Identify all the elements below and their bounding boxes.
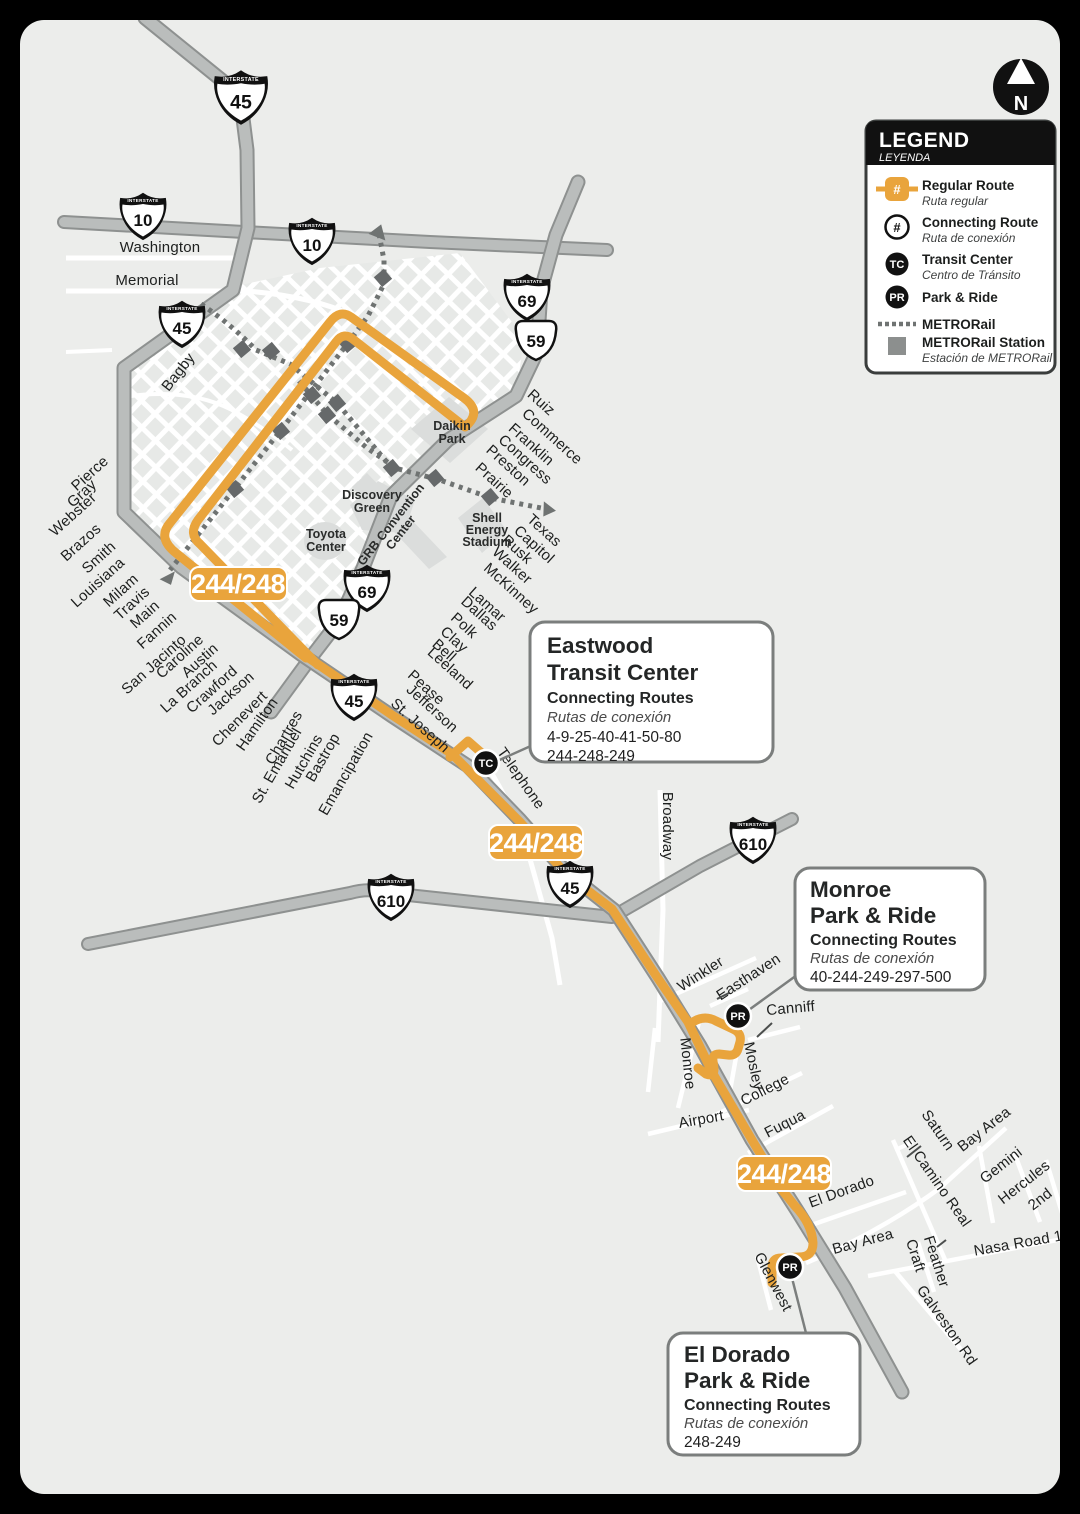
svg-text:METRORail: METRORail	[922, 317, 996, 332]
svg-text:TC: TC	[479, 758, 494, 770]
callout-title: Park & Ride	[810, 903, 936, 928]
svg-text:Park & Ride: Park & Ride	[922, 290, 998, 305]
callout-monroe: Monroe Park & Ride Connecting Routes Rut…	[795, 868, 985, 990]
callout-heading: Connecting Routes	[684, 1397, 831, 1414]
svg-text:INTERSTATE: INTERSTATE	[166, 306, 197, 311]
svg-text:244/248: 244/248	[737, 1159, 832, 1189]
callout-title: El Dorado	[684, 1342, 790, 1367]
callout-eastwood: Eastwood Transit Center Connecting Route…	[530, 622, 773, 765]
svg-text:Regular Route: Regular Route	[922, 178, 1015, 193]
hash-icon: #	[893, 182, 901, 197]
route-badge-south: 244/248	[737, 1156, 832, 1191]
svg-text:Ruta de conexión: Ruta de conexión	[922, 231, 1016, 245]
svg-text:Centro de Tránsito: Centro de Tránsito	[922, 268, 1021, 282]
svg-text:610: 610	[739, 835, 767, 854]
svg-text:Ruta regular: Ruta regular	[922, 194, 989, 208]
callout-heading: Connecting Routes	[547, 690, 694, 707]
pr-icon: PR	[889, 292, 904, 304]
svg-text:Connecting Route: Connecting Route	[922, 215, 1039, 230]
legend-subtitle: LEYENDA	[879, 152, 930, 164]
landmark-label: Park	[438, 432, 465, 446]
svg-text:Estación de METRORail: Estación de METRORail	[922, 351, 1052, 365]
svg-text:610: 610	[377, 892, 405, 911]
svg-text:59: 59	[330, 611, 349, 630]
svg-text:10: 10	[303, 236, 322, 255]
svg-text:INTERSTATE: INTERSTATE	[737, 822, 768, 827]
legend-title: LEGEND	[879, 129, 970, 152]
callout-routes: 248-249	[684, 1434, 741, 1451]
callout-title: Park & Ride	[684, 1368, 810, 1393]
landmark-label: Center	[306, 540, 346, 554]
street-label: Memorial	[115, 272, 178, 289]
svg-text:METRORail Station: METRORail Station	[922, 335, 1045, 350]
svg-text:59: 59	[527, 332, 546, 351]
street-label: Washington	[120, 239, 201, 256]
svg-text:PR: PR	[730, 1011, 745, 1023]
landmark-label: Daikin	[433, 419, 471, 433]
hash-icon: #	[893, 220, 901, 235]
svg-text:INTERSTATE: INTERSTATE	[351, 570, 382, 575]
callout-heading-es: Rutas de conexión	[810, 950, 934, 967]
route-badge-downtown: 244/248	[190, 567, 287, 601]
svg-text:PR: PR	[782, 1262, 797, 1274]
svg-text:INTERSTATE: INTERSTATE	[554, 866, 585, 871]
svg-text:INTERSTATE: INTERSTATE	[338, 679, 369, 684]
callout-heading-es: Rutas de conexión	[684, 1415, 808, 1432]
route-badge-mid: 244/248	[489, 825, 584, 860]
monroe-pr-marker: PR	[725, 1003, 751, 1029]
callout-routes: 244-248-249	[547, 748, 635, 765]
svg-text:INTERSTATE: INTERSTATE	[296, 223, 327, 228]
svg-text:69: 69	[358, 583, 377, 602]
svg-text:N: N	[1014, 93, 1028, 115]
route-map-canvas: Washington Memorial Bagby Pierce Gray We…	[0, 0, 1080, 1514]
eldorado-pr-marker: PR	[777, 1254, 803, 1280]
svg-text:10: 10	[134, 211, 153, 230]
callout-heading-es: Rutas de conexión	[547, 709, 671, 726]
callout-title: Monroe	[810, 877, 891, 902]
landmark-label: Toyota	[306, 527, 347, 541]
landmark-label: Green	[354, 501, 390, 515]
svg-text:244/248: 244/248	[489, 828, 584, 858]
rail-station-icon	[888, 337, 906, 355]
svg-text:244/248: 244/248	[191, 569, 286, 599]
svg-text:45: 45	[561, 879, 580, 898]
callout-title: Eastwood	[547, 633, 653, 658]
tc-icon: TC	[890, 259, 905, 271]
callout-routes: 40-244-249-297-500	[810, 969, 952, 986]
callout-heading: Connecting Routes	[810, 932, 957, 949]
svg-text:INTERSTATE: INTERSTATE	[223, 77, 259, 83]
svg-text:45: 45	[230, 92, 252, 114]
svg-text:69: 69	[518, 292, 537, 311]
landmark-label: Discovery	[342, 488, 402, 502]
landmark-label: Stadium	[462, 535, 511, 549]
callout-routes: 4-9-25-40-41-50-80	[547, 729, 682, 746]
transit-map-page: Washington Memorial Bagby Pierce Gray We…	[0, 0, 1080, 1514]
eastwood-tc-marker: TC	[473, 750, 499, 776]
svg-text:45: 45	[345, 692, 364, 711]
svg-text:Transit Center: Transit Center	[922, 252, 1014, 267]
callout-eldorado: El Dorado Park & Ride Connecting Routes …	[668, 1333, 860, 1455]
svg-text:INTERSTATE: INTERSTATE	[127, 198, 158, 203]
street-label: Broadway	[659, 792, 676, 861]
callout-title: Transit Center	[547, 660, 699, 685]
svg-text:INTERSTATE: INTERSTATE	[511, 279, 542, 284]
svg-text:45: 45	[173, 319, 192, 338]
legend: LEGEND LEYENDA # Regular Route Ruta regu…	[866, 121, 1055, 373]
svg-text:INTERSTATE: INTERSTATE	[375, 879, 406, 884]
